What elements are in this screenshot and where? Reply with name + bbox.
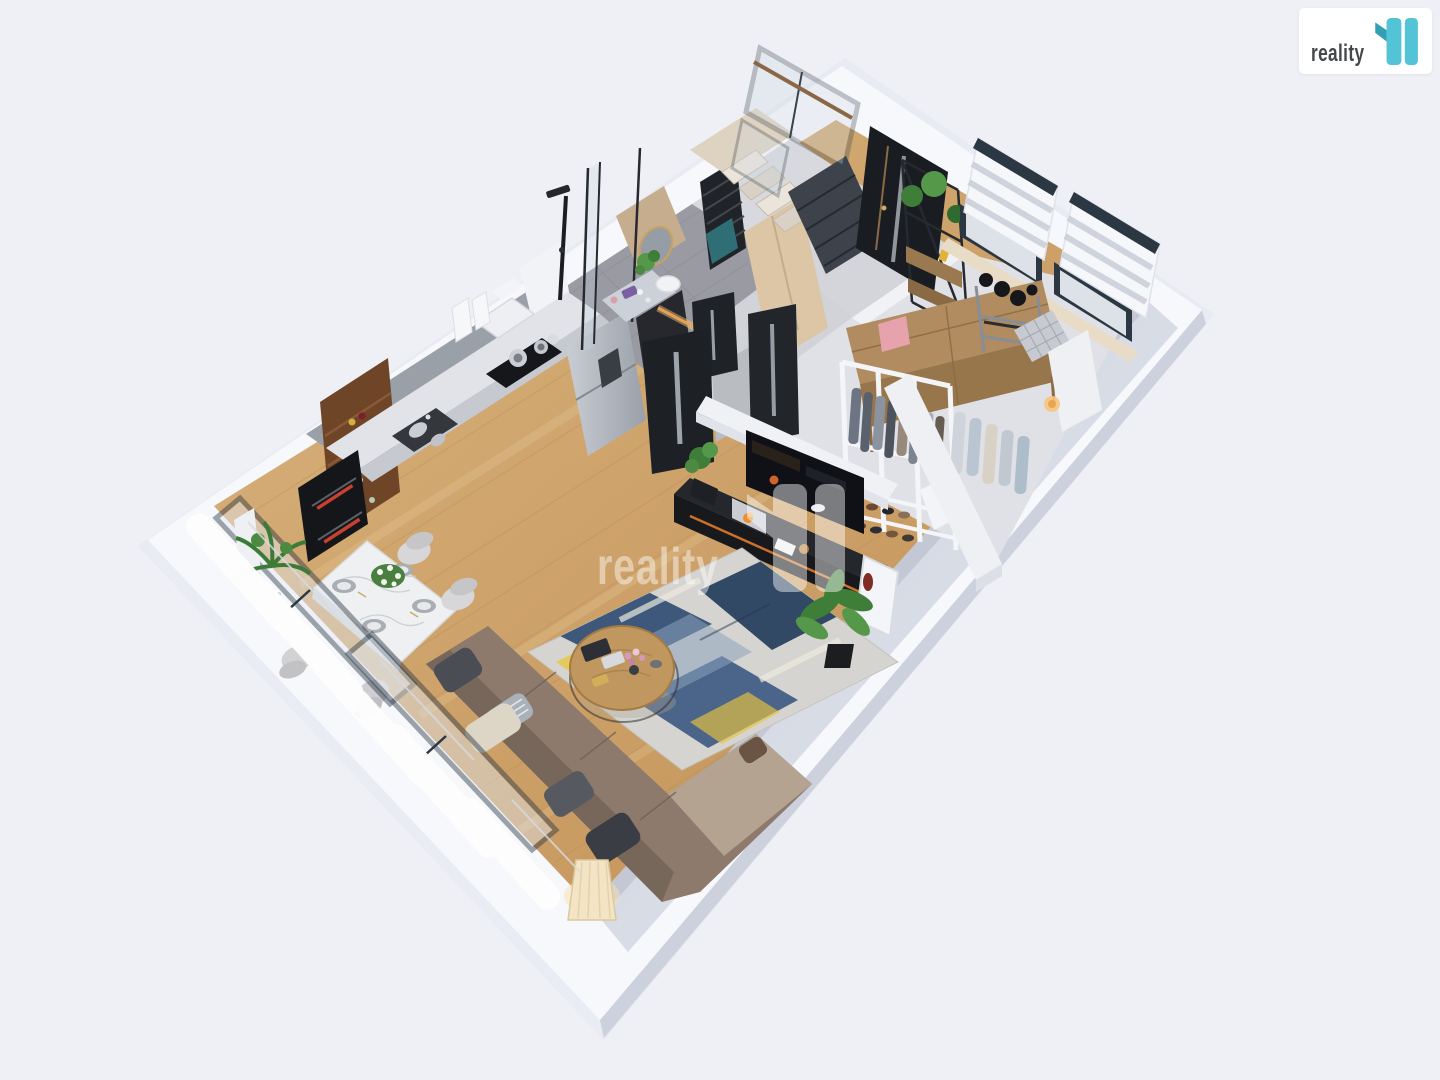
vase — [629, 665, 639, 675]
basin — [656, 276, 680, 292]
logo-mark-11 — [1374, 18, 1420, 65]
reality11-logo: reality — [1299, 8, 1432, 74]
amber-vase — [799, 544, 809, 554]
coffee-table — [570, 626, 678, 722]
logo-text: reality — [1311, 43, 1364, 65]
orange-vase — [770, 476, 779, 485]
apartment-3d-view — [0, 0, 1440, 1080]
floorplan-render: reality reality — [0, 0, 1440, 1080]
flower-centerpiece — [371, 564, 405, 588]
white-dish — [811, 504, 825, 512]
red-vase — [863, 573, 873, 591]
